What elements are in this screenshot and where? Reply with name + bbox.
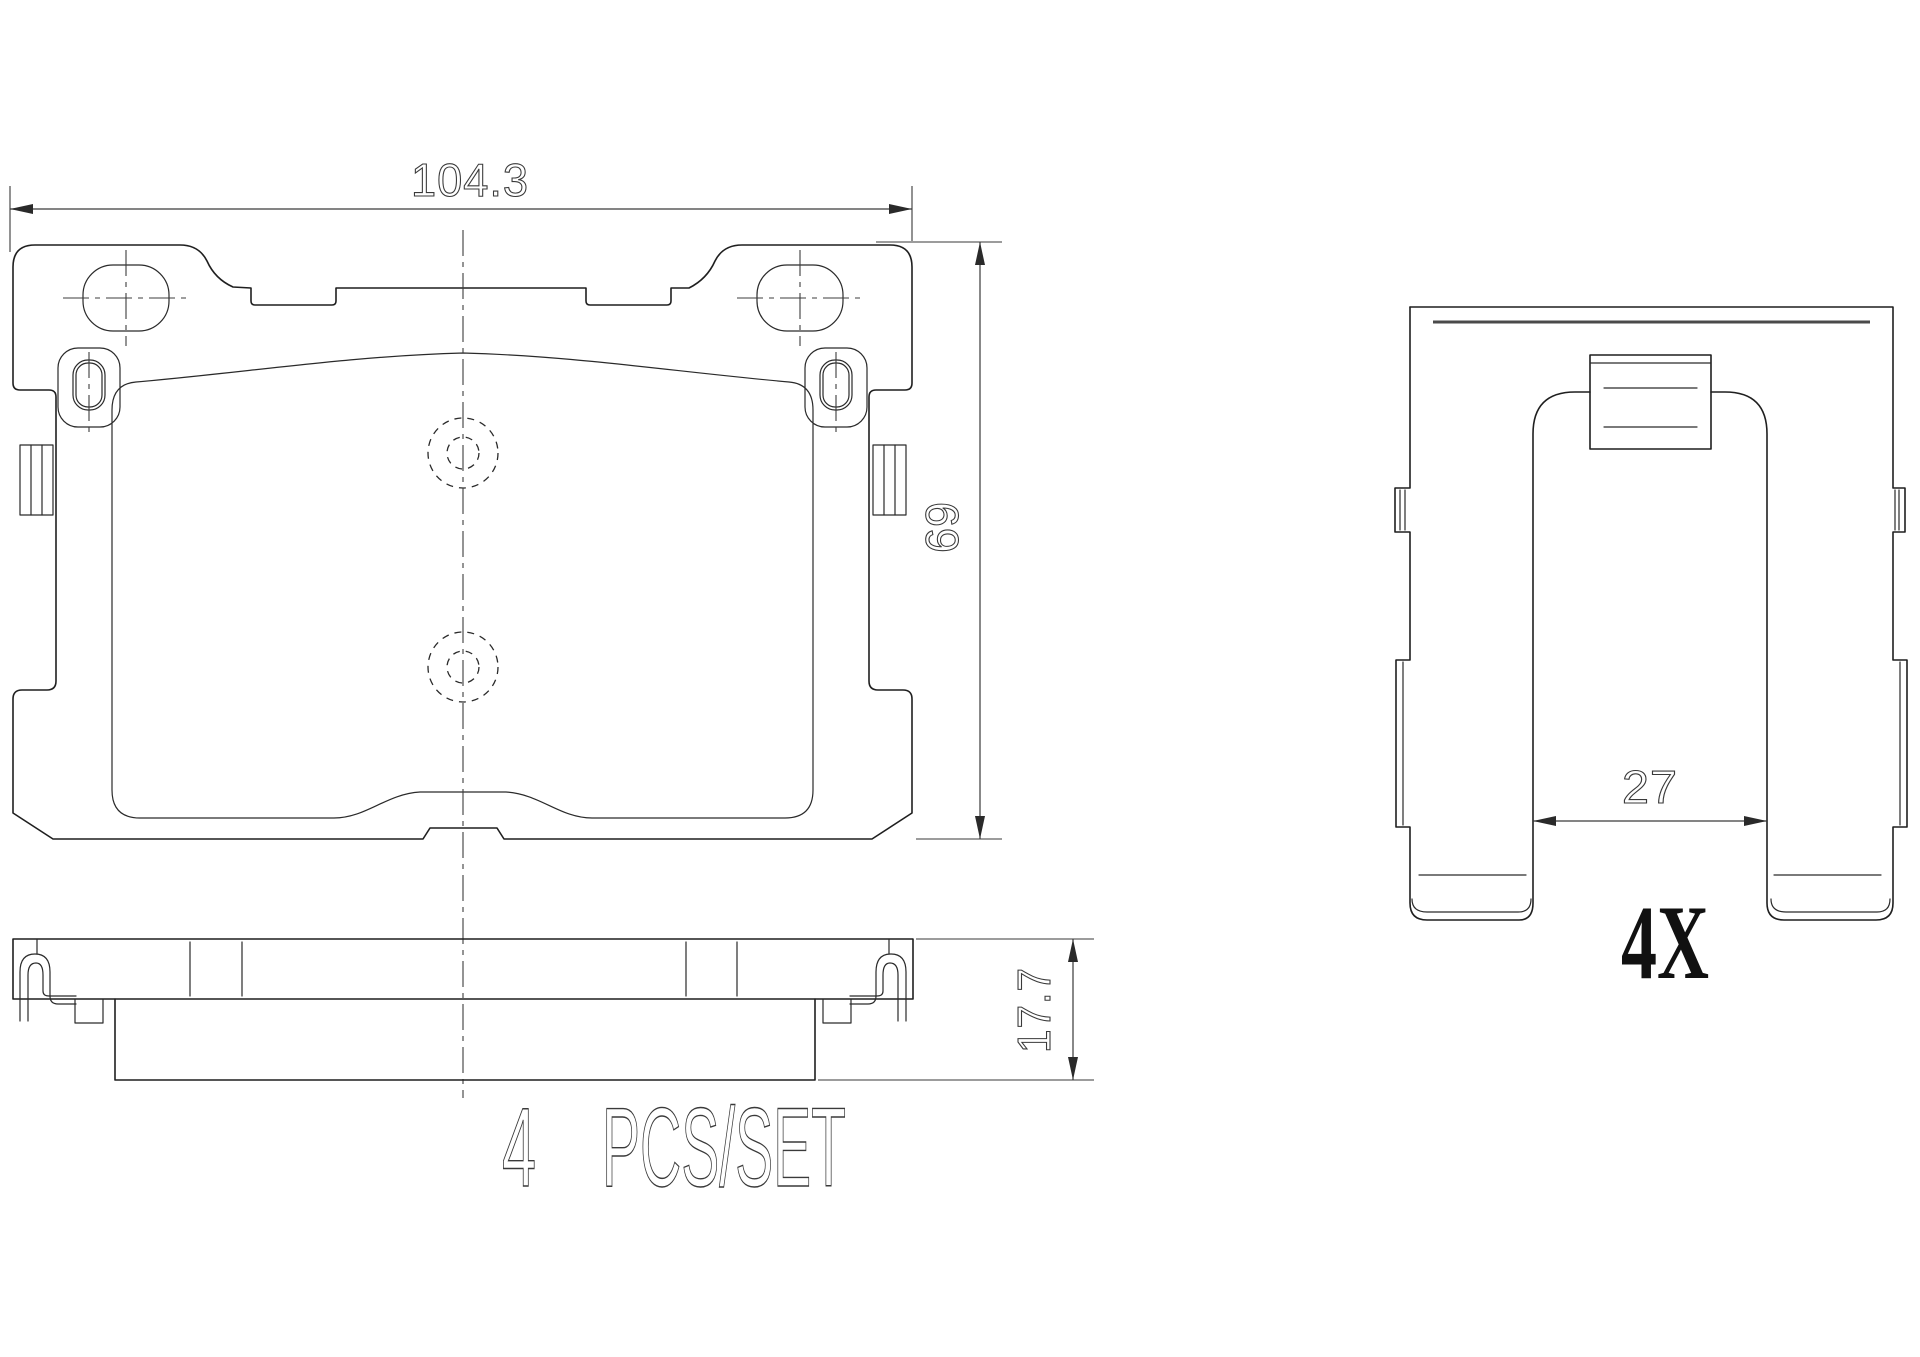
side-friction-block (115, 999, 815, 1080)
arrowhead-right (889, 204, 912, 214)
ear-lobe-left (58, 348, 120, 432)
dimension-thickness: 17.7 (818, 939, 1094, 1080)
arrowhead-up (975, 242, 985, 265)
side-spring-right (850, 939, 906, 1021)
clip-foot-right (1771, 875, 1890, 912)
arrowhead-right (1744, 816, 1767, 826)
arrowhead-left (1533, 816, 1556, 826)
set-quantity-label: 4 PCS/SET (502, 1085, 846, 1210)
clip-outline-right (1410, 307, 1907, 920)
dim-height-label: 69 (916, 501, 968, 553)
dim-width-label: 104.3 (411, 154, 529, 206)
edge-tab-left (20, 445, 53, 515)
dimension-clip-opening: 27 (1533, 761, 1767, 826)
front-view: 104.3 69 (10, 154, 1002, 1098)
mounting-slot-left (63, 250, 189, 346)
technical-drawing-sheet: 104.3 69 (0, 0, 1920, 1357)
dim-clip-opening-label: 27 (1622, 761, 1678, 813)
mounting-slot-right (737, 250, 863, 346)
clip-center-tab (1590, 355, 1711, 449)
side-spring-left (20, 939, 76, 1021)
side-tab-right (823, 999, 851, 1023)
ear-lobe-right (805, 348, 867, 432)
set-quantity-unit: PCS/SET (602, 1085, 846, 1210)
clip-quantity-label: 4X (1621, 884, 1709, 1001)
clip-outline-left (1395, 307, 1590, 920)
side-tab-left (75, 999, 103, 1023)
edge-tab-right (873, 445, 906, 515)
clip-foot-left (1412, 875, 1531, 912)
arrowhead-left (10, 204, 33, 214)
arrowhead-up (1068, 939, 1078, 962)
set-quantity-number: 4 (502, 1085, 536, 1210)
dim-thickness-label: 17.7 (1008, 967, 1060, 1053)
arrowhead-down (1068, 1057, 1078, 1080)
dimension-width: 104.3 (10, 154, 912, 252)
side-view: 17.7 (13, 939, 1094, 1080)
clip-view: 27 4X (1395, 307, 1907, 1001)
dimension-height: 69 (876, 242, 1002, 839)
arrowhead-down (975, 816, 985, 839)
